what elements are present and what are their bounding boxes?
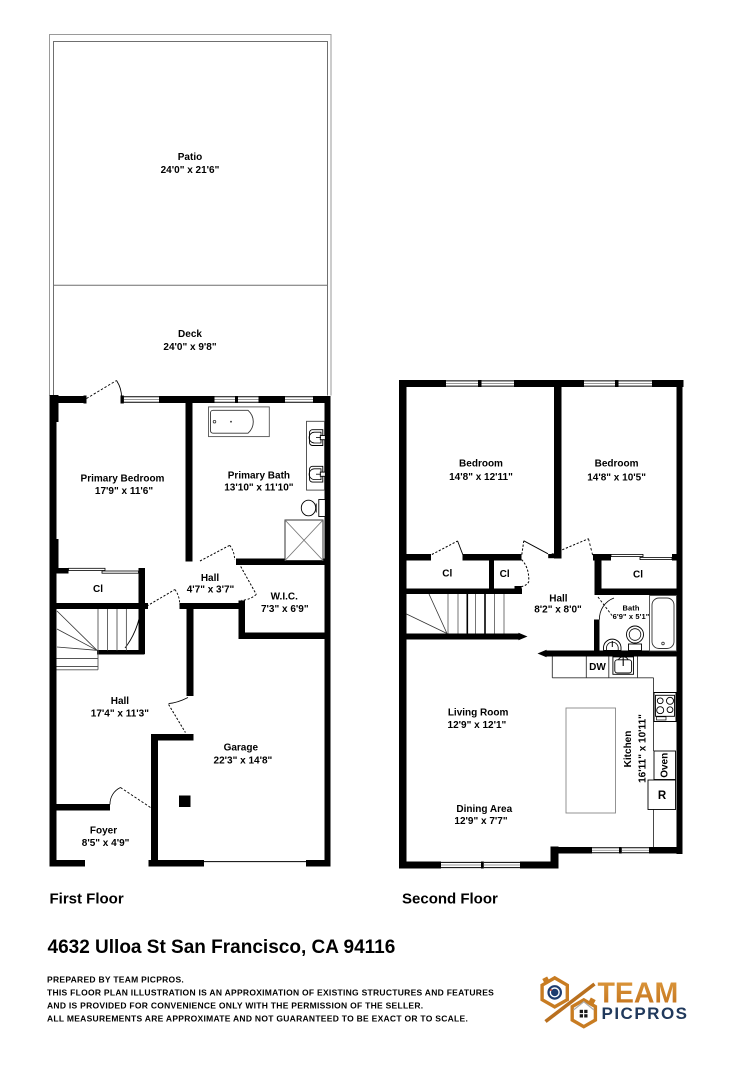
svg-text:PICPROS: PICPROS: [602, 1004, 689, 1023]
svg-text:W.I.C.: W.I.C.: [271, 592, 298, 603]
svg-text:17'9" x 11'6": 17'9" x 11'6": [95, 486, 153, 497]
svg-text:6'9" x 5'1": 6'9" x 5'1": [613, 612, 650, 621]
svg-text:Bedroom: Bedroom: [595, 459, 639, 470]
svg-text:DW: DW: [589, 662, 606, 673]
svg-text:Garage: Garage: [224, 742, 259, 753]
svg-text:Dining Area: Dining Area: [456, 804, 512, 815]
svg-text:16'11" x 10'11": 16'11" x 10'11": [638, 714, 649, 783]
svg-text:Hall: Hall: [549, 594, 568, 605]
svg-text:8'2" x 8'0": 8'2" x 8'0": [534, 604, 582, 615]
svg-text:Hall: Hall: [111, 696, 130, 707]
svg-text:ALL MEASUREMENTS ARE APPROXIMA: ALL MEASUREMENTS ARE APPROXIMATE AND NOT…: [47, 1014, 468, 1024]
svg-text:17'4" x 11'3": 17'4" x 11'3": [91, 709, 149, 720]
svg-text:8'5" x 4'9": 8'5" x 4'9": [82, 838, 130, 849]
svg-text:4'7" x 3'7": 4'7" x 3'7": [187, 585, 235, 596]
svg-text:12'9" x 7'7": 12'9" x 7'7": [454, 816, 507, 827]
svg-text:AND IS PROVIDED FOR CONVENIENC: AND IS PROVIDED FOR CONVENIENCE ONLY WIT…: [47, 1001, 423, 1011]
svg-text:13'10" x 11'10": 13'10" x 11'10": [224, 483, 294, 494]
svg-text:Kitchen: Kitchen: [623, 731, 634, 768]
svg-text:THIS FLOOR PLAN ILLUSTRATION I: THIS FLOOR PLAN ILLUSTRATION IS AN APPRO…: [47, 988, 494, 998]
svg-text:Foyer: Foyer: [90, 825, 117, 836]
svg-text:R: R: [658, 790, 667, 802]
svg-text:Cl: Cl: [93, 584, 103, 595]
svg-text:Living Room: Living Room: [448, 708, 509, 719]
svg-text:Cl: Cl: [442, 569, 452, 580]
svg-text:12'9" x 12'1": 12'9" x 12'1": [448, 720, 507, 731]
svg-text:Cl: Cl: [633, 569, 643, 580]
svg-text:14'8" x 10'5": 14'8" x 10'5": [587, 473, 646, 484]
svg-text:Second Floor: Second Floor: [402, 891, 498, 908]
svg-text:First Floor: First Floor: [50, 891, 124, 908]
svg-text:24'0" x 21'6": 24'0" x 21'6": [161, 165, 220, 176]
svg-text:Patio: Patio: [178, 152, 202, 163]
svg-text:Cl: Cl: [500, 569, 510, 580]
svg-text:Primary Bedroom: Primary Bedroom: [81, 474, 165, 485]
svg-text:Bedroom: Bedroom: [459, 459, 503, 470]
svg-text:14'8" x 12'11": 14'8" x 12'11": [449, 472, 513, 483]
svg-text:24'0" x 9'8": 24'0" x 9'8": [163, 342, 216, 353]
svg-text:Primary Bath: Primary Bath: [228, 470, 290, 481]
svg-text:7'3" x 6'9": 7'3" x 6'9": [261, 604, 309, 615]
svg-text:Deck: Deck: [178, 329, 202, 340]
svg-text:4632 Ulloa St San Francisco, C: 4632 Ulloa St San Francisco, CA 94116: [48, 937, 396, 958]
svg-text:22'3" x 14'8": 22'3" x 14'8": [214, 755, 273, 766]
svg-text:PREPARED BY TEAM PICPROS.: PREPARED BY TEAM PICPROS.: [47, 975, 184, 985]
svg-text:Oven: Oven: [660, 753, 671, 778]
svg-text:Hall: Hall: [201, 573, 220, 584]
